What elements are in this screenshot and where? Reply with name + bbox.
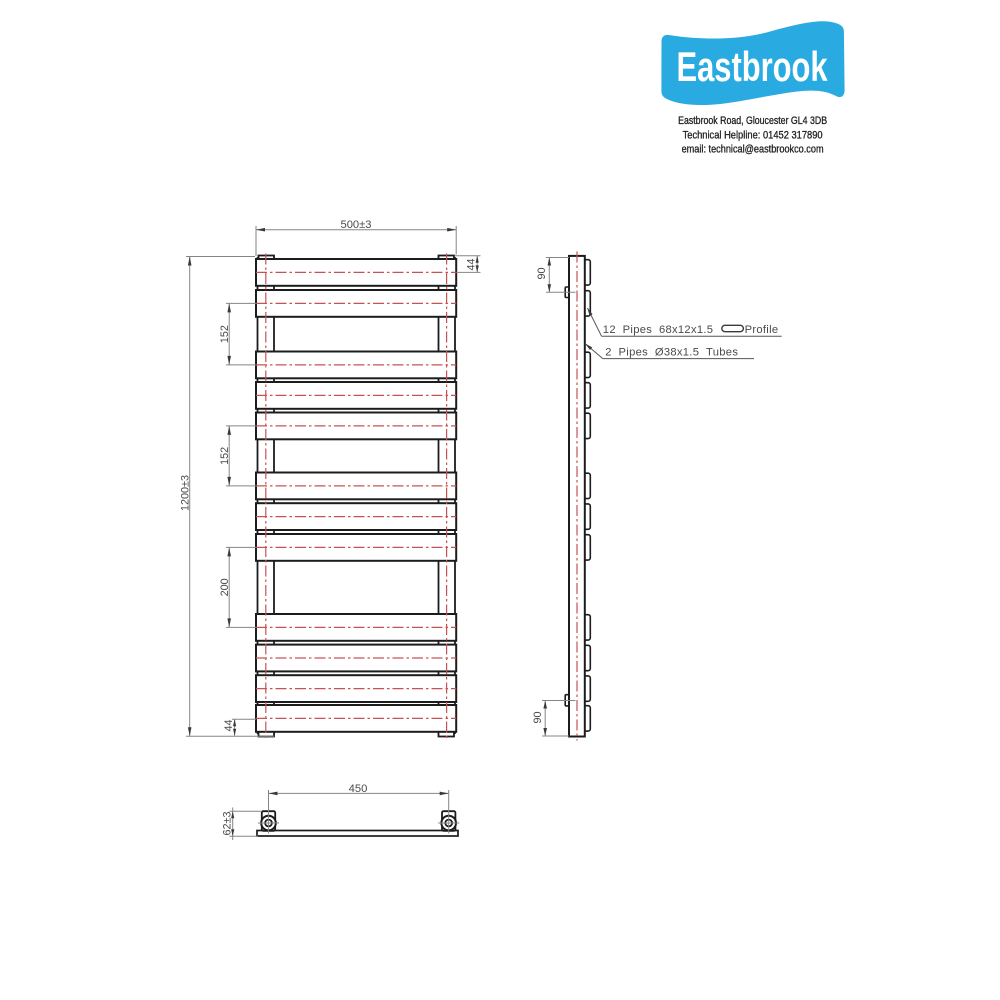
svg-text:Technical Helpline: 01452 3178: Technical Helpline: 01452 317890 <box>683 129 823 141</box>
svg-text:62±3: 62±3 <box>222 812 234 836</box>
svg-text:Profile: Profile <box>745 324 779 336</box>
svg-text:12 Pipes 68x12x1.5: 12 Pipes 68x12x1.5 <box>603 324 714 336</box>
svg-text:500±3: 500±3 <box>340 219 371 231</box>
svg-text:200: 200 <box>219 578 231 596</box>
svg-text:152: 152 <box>219 325 231 343</box>
svg-text:Eastbrook Road, Gloucester GL4: Eastbrook Road, Gloucester GL4 3DB <box>678 115 827 127</box>
svg-text:Eastbrook: Eastbrook <box>677 43 828 90</box>
svg-text:1200±3: 1200±3 <box>179 475 191 511</box>
svg-text:2 Pipes Ø38x1.5 Tubes: 2 Pipes Ø38x1.5 Tubes <box>605 347 738 359</box>
svg-text:450: 450 <box>349 783 368 795</box>
svg-text:44: 44 <box>465 258 477 270</box>
svg-text:152: 152 <box>219 447 231 465</box>
svg-text:90: 90 <box>536 267 548 279</box>
svg-text:44: 44 <box>223 719 235 731</box>
svg-text:email: technical@eastbrookco.c: email: technical@eastbrookco.com <box>682 144 824 156</box>
svg-text:90: 90 <box>532 711 544 723</box>
